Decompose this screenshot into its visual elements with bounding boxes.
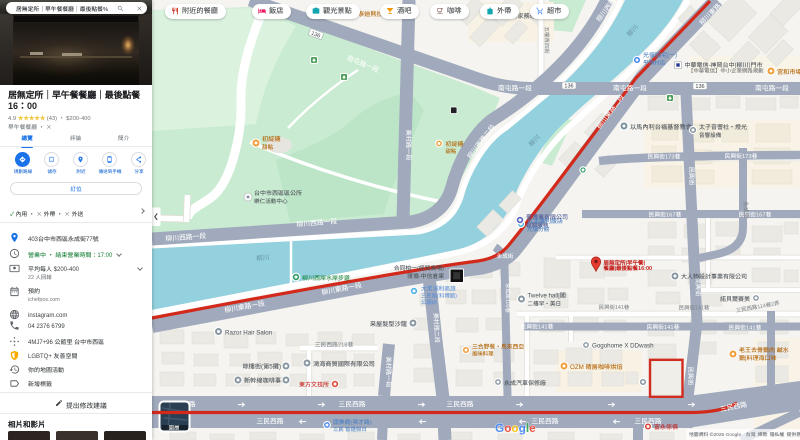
svg-text:富永傢俱: 富永傢俱 [654, 422, 678, 431]
svg-text:台中市西區區公所: 台中市西區區公所 [254, 188, 302, 197]
svg-text:民興街173巷: 民興街173巷 [725, 151, 758, 160]
svg-text:匯僑-中信倉庫: 匯僑-中信倉庫 [407, 271, 444, 280]
svg-text:五權西四街: 五權西四街 [543, 27, 551, 55]
svg-text:民興街141巷: 民興街141巷 [679, 304, 710, 312]
svg-text:民興街141巷: 民興街141巷 [729, 323, 762, 332]
svg-text:二樓早·美日: 二樓早·美日 [528, 300, 562, 308]
svg-text:地圖資料 ©2025 Google 台灣 條款 隱私權 提供: 地圖資料 ©2025 Google 台灣 條款 隱私權 提供意見 [689, 431, 800, 438]
svg-text:鵝|料理海口味: 鵝|料理海口味 [739, 353, 777, 362]
svg-text:報關服務: 報關服務 [526, 221, 549, 229]
svg-text:柳川西岸水岸步道: 柳川西岸水岸步道 [302, 273, 350, 282]
svg-text:民興街167巷: 民興街167巷 [649, 210, 682, 219]
svg-text:民興街141巷: 民興街141巷 [521, 322, 554, 331]
svg-text:以馬內利台福基督教會: 以馬內利台福基督教會 [630, 122, 693, 131]
svg-text:三民西路: 三民西路 [256, 416, 283, 426]
svg-text:136: 136 [564, 82, 573, 90]
svg-text:平價村店: 平價村店 [643, 59, 666, 67]
svg-text:柳川: 柳川 [256, 251, 270, 262]
svg-text:南屯路一段: 南屯路一段 [755, 83, 789, 93]
svg-text:美村路一段: 美村路一段 [405, 130, 414, 161]
svg-text:初綻糖: 初綻糖 [262, 134, 281, 143]
svg-text:公園店: 公園店 [421, 298, 438, 306]
svg-text:采屋髮型沙龍: 采屋髮型沙龍 [370, 319, 407, 328]
svg-text:甜點: 甜點 [262, 143, 274, 151]
svg-text:永成街101巷: 永成街101巷 [504, 283, 511, 313]
svg-text:鴻海商貿國際有限公司: 鴻海商貿國際有限公司 [313, 359, 375, 368]
svg-text:南屯路一段: 南屯路一段 [613, 83, 647, 93]
svg-text:音響設備: 音響設備 [699, 131, 722, 139]
svg-text:圖層: 圖層 [169, 424, 180, 432]
svg-text:三民西路: 三民西路 [446, 399, 473, 409]
svg-text:宮和市場飯糰: 宮和市場飯糰 [777, 67, 800, 76]
svg-text:Gogohome X DDwash: Gogohome X DDwash [592, 341, 654, 350]
svg-text:太子音響社·燈光: 太子音響社·燈光 [699, 122, 747, 131]
svg-text:三民西路218巷: 三民西路218巷 [315, 340, 354, 349]
svg-text:永成街: 永成街 [497, 252, 514, 260]
svg-text:三民 智選假日: 三民 智選假日 [333, 425, 367, 433]
svg-text:136: 136 [695, 82, 704, 90]
svg-text:民興街141巷: 民興街141巷 [647, 322, 680, 331]
svg-text:美村路二段: 美村路二段 [432, 313, 443, 343]
svg-text:民興街: 民興街 [687, 367, 696, 386]
svg-text:餐廳|最後點餐16:00: 餐廳|最後點餐16:00 [603, 264, 653, 272]
svg-text:民興街: 民興街 [694, 278, 703, 297]
svg-text:民興街141巷: 民興街141巷 [599, 303, 630, 311]
svg-text:諾貝爾賽美: 諾貝爾賽美 [720, 294, 750, 303]
svg-text:美村路一段: 美村路一段 [385, 357, 394, 388]
svg-text:樂仁活動中心: 樂仁活動中心 [254, 197, 288, 205]
svg-text:東方文技所: 東方文技所 [299, 380, 329, 389]
svg-text:OZM 晴房咖啡烘焙: OZM 晴房咖啡烘焙 [570, 362, 623, 371]
svg-text:三民西路: 三民西路 [338, 399, 365, 409]
svg-text:大人物設計事業有限公司: 大人物設計事業有限公司 [681, 272, 747, 281]
svg-text:永成汽車保修廠: 永成汽車保修廠 [504, 378, 546, 387]
svg-text:民興街: 民興街 [688, 167, 697, 186]
svg-text:民興街173巷: 民興街173巷 [648, 152, 681, 161]
svg-text:南屯路一段: 南屯路一段 [498, 83, 532, 93]
svg-text:咪樓街(第5攤): 咪樓街(第5攤) [243, 362, 282, 371]
svg-text:風味料理: 風味料理 [472, 350, 494, 358]
svg-text:甜點: 甜點 [446, 147, 457, 155]
svg-text:臺博業有限公司: 臺博業有限公司 [526, 212, 568, 221]
svg-text:Razor Hair Salon: Razor Hair Salon [225, 328, 273, 337]
svg-text:Twelve hall|閣: Twelve hall|閣 [528, 291, 566, 300]
svg-text:永成街: 永成街 [742, 201, 752, 219]
svg-text:Google: Google [495, 419, 536, 436]
svg-text:【中華電信】中小企業網路規劃: 【中華電信】中小企業網路規劃 [688, 67, 763, 75]
